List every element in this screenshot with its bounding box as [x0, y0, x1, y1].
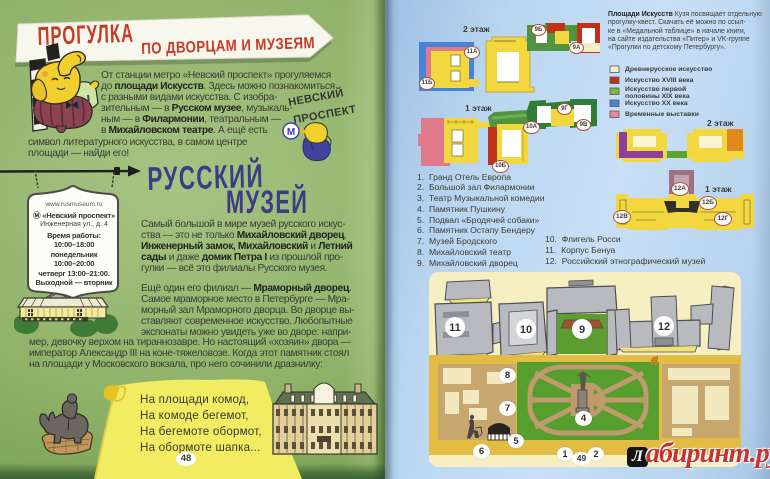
svg-text:9: 9	[579, 324, 585, 336]
svg-text:11: 11	[449, 322, 461, 334]
svg-text:10: 10	[520, 324, 532, 336]
svg-text:M: M	[287, 127, 295, 138]
svg-text:12: 12	[658, 321, 670, 333]
